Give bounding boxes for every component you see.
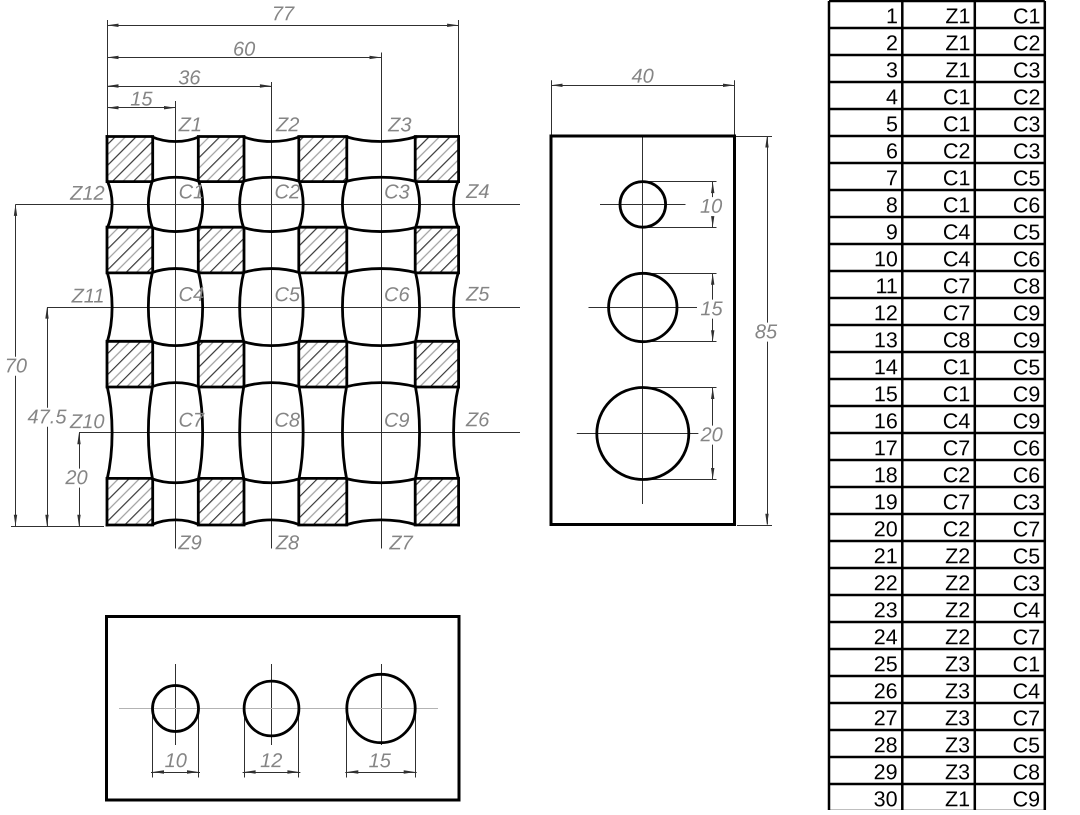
- svg-text:C9: C9: [384, 410, 410, 432]
- svg-text:Z3: Z3: [945, 706, 970, 730]
- svg-text:Z3: Z3: [945, 733, 970, 757]
- svg-text:C8: C8: [943, 328, 971, 352]
- svg-text:C7: C7: [1013, 517, 1040, 541]
- svg-text:C6: C6: [1013, 193, 1041, 217]
- svg-text:C7: C7: [943, 274, 970, 298]
- svg-text:C1: C1: [1013, 4, 1040, 28]
- svg-text:C3: C3: [1013, 490, 1041, 514]
- svg-text:Z9: Z9: [177, 532, 201, 554]
- svg-text:15: 15: [874, 382, 898, 406]
- svg-text:Z11: Z11: [71, 285, 105, 307]
- svg-text:30: 30: [874, 787, 898, 810]
- svg-text:Z10: Z10: [69, 411, 104, 433]
- svg-text:C2: C2: [275, 181, 301, 203]
- svg-text:Z1: Z1: [945, 58, 970, 82]
- svg-text:C6: C6: [1013, 247, 1041, 271]
- svg-text:12: 12: [874, 301, 898, 325]
- svg-text:27: 27: [874, 706, 898, 730]
- svg-text:C9: C9: [1013, 301, 1040, 325]
- svg-text:C9: C9: [1013, 382, 1040, 406]
- svg-text:Z2: Z2: [945, 544, 970, 568]
- svg-text:26: 26: [874, 679, 898, 703]
- svg-text:10: 10: [874, 247, 898, 271]
- svg-text:C2: C2: [1013, 31, 1040, 55]
- svg-text:13: 13: [874, 328, 898, 352]
- svg-text:12: 12: [260, 750, 282, 772]
- svg-text:14: 14: [874, 355, 898, 379]
- svg-text:C2: C2: [943, 139, 970, 163]
- svg-text:Z1: Z1: [178, 114, 202, 136]
- svg-text:16: 16: [874, 409, 898, 433]
- svg-text:C7: C7: [178, 410, 204, 432]
- svg-text:C1: C1: [179, 181, 205, 203]
- svg-text:C5: C5: [1013, 733, 1041, 757]
- svg-text:C8: C8: [274, 410, 300, 432]
- svg-text:Z1: Z1: [945, 4, 970, 28]
- svg-text:21: 21: [874, 544, 898, 568]
- svg-text:10: 10: [700, 196, 722, 218]
- svg-text:Z3: Z3: [387, 114, 411, 136]
- svg-text:C9: C9: [1013, 787, 1040, 810]
- svg-text:Z5: Z5: [465, 284, 490, 306]
- svg-text:Z2: Z2: [945, 598, 970, 622]
- svg-text:Z6: Z6: [465, 409, 490, 431]
- svg-text:29: 29: [874, 760, 898, 784]
- svg-text:7: 7: [886, 166, 898, 190]
- svg-text:C7: C7: [1013, 625, 1040, 649]
- svg-text:C1: C1: [943, 112, 970, 136]
- svg-text:8: 8: [886, 193, 898, 217]
- svg-text:20: 20: [64, 467, 87, 489]
- svg-text:C4: C4: [943, 409, 971, 433]
- svg-text:1: 1: [886, 4, 898, 28]
- svg-text:77: 77: [272, 3, 295, 25]
- svg-text:Z2: Z2: [945, 571, 970, 595]
- svg-text:4: 4: [886, 85, 898, 109]
- svg-text:C2: C2: [1013, 85, 1040, 109]
- svg-text:18: 18: [874, 463, 898, 487]
- svg-text:Z2: Z2: [275, 114, 299, 136]
- svg-text:C3: C3: [1013, 58, 1041, 82]
- svg-text:36: 36: [178, 67, 201, 89]
- svg-text:20: 20: [699, 424, 722, 446]
- svg-text:C7: C7: [943, 301, 970, 325]
- svg-text:6: 6: [886, 139, 898, 163]
- svg-text:11: 11: [876, 274, 898, 298]
- svg-text:C5: C5: [1013, 355, 1041, 379]
- svg-text:10: 10: [165, 750, 187, 772]
- svg-text:15: 15: [700, 298, 723, 320]
- svg-text:C9: C9: [1013, 409, 1040, 433]
- svg-text:25: 25: [874, 652, 898, 676]
- svg-text:Z3: Z3: [945, 652, 970, 676]
- svg-text:C3: C3: [1013, 571, 1041, 595]
- svg-text:2: 2: [886, 31, 898, 55]
- svg-text:Z3: Z3: [945, 760, 970, 784]
- svg-text:47.5: 47.5: [28, 406, 68, 428]
- svg-text:C3: C3: [384, 181, 410, 203]
- svg-text:C9: C9: [1013, 328, 1040, 352]
- svg-text:40: 40: [632, 66, 654, 88]
- svg-text:19: 19: [874, 490, 898, 514]
- svg-text:C5: C5: [1013, 166, 1041, 190]
- svg-text:Z4: Z4: [465, 181, 489, 203]
- svg-text:C7: C7: [943, 436, 970, 460]
- svg-text:15: 15: [130, 89, 153, 111]
- svg-text:C4: C4: [1013, 679, 1041, 703]
- svg-text:C8: C8: [1013, 760, 1041, 784]
- svg-text:C8: C8: [1013, 274, 1041, 298]
- svg-text:Z1: Z1: [945, 787, 970, 810]
- svg-text:9: 9: [886, 220, 898, 244]
- svg-text:C1: C1: [943, 382, 970, 406]
- svg-text:C4: C4: [179, 284, 205, 306]
- svg-text:Z8: Z8: [275, 532, 299, 554]
- svg-text:C4: C4: [943, 220, 971, 244]
- svg-text:C6: C6: [1013, 463, 1041, 487]
- svg-text:C2: C2: [943, 517, 970, 541]
- svg-text:Z2: Z2: [945, 625, 970, 649]
- svg-text:C4: C4: [943, 247, 971, 271]
- svg-text:C1: C1: [1013, 652, 1040, 676]
- svg-text:Z3: Z3: [945, 679, 970, 703]
- svg-text:85: 85: [755, 321, 778, 343]
- svg-text:23: 23: [874, 598, 898, 622]
- svg-text:60: 60: [233, 39, 255, 61]
- svg-text:C3: C3: [1013, 112, 1041, 136]
- svg-text:C1: C1: [943, 193, 970, 217]
- svg-text:C1: C1: [943, 166, 970, 190]
- svg-text:C3: C3: [1013, 139, 1041, 163]
- svg-text:C5: C5: [1013, 544, 1041, 568]
- svg-text:C7: C7: [1013, 706, 1040, 730]
- svg-text:C2: C2: [943, 463, 970, 487]
- svg-text:C5: C5: [1013, 220, 1041, 244]
- svg-text:22: 22: [874, 571, 898, 595]
- svg-text:C5: C5: [274, 284, 300, 306]
- svg-text:C6: C6: [1013, 436, 1041, 460]
- svg-text:Z1: Z1: [945, 31, 970, 55]
- svg-text:15: 15: [369, 750, 392, 772]
- svg-text:3: 3: [886, 58, 898, 82]
- svg-text:28: 28: [874, 733, 898, 757]
- svg-text:5: 5: [886, 112, 898, 136]
- svg-text:17: 17: [874, 436, 898, 460]
- svg-text:20: 20: [874, 517, 898, 541]
- svg-text:C4: C4: [1013, 598, 1041, 622]
- svg-text:C7: C7: [943, 490, 970, 514]
- svg-text:C1: C1: [943, 355, 970, 379]
- svg-text:Z12: Z12: [69, 183, 104, 205]
- svg-text:70: 70: [5, 355, 27, 377]
- svg-text:C1: C1: [943, 85, 970, 109]
- svg-text:C6: C6: [384, 284, 410, 306]
- svg-text:24: 24: [874, 625, 898, 649]
- svg-text:Z7: Z7: [388, 532, 413, 554]
